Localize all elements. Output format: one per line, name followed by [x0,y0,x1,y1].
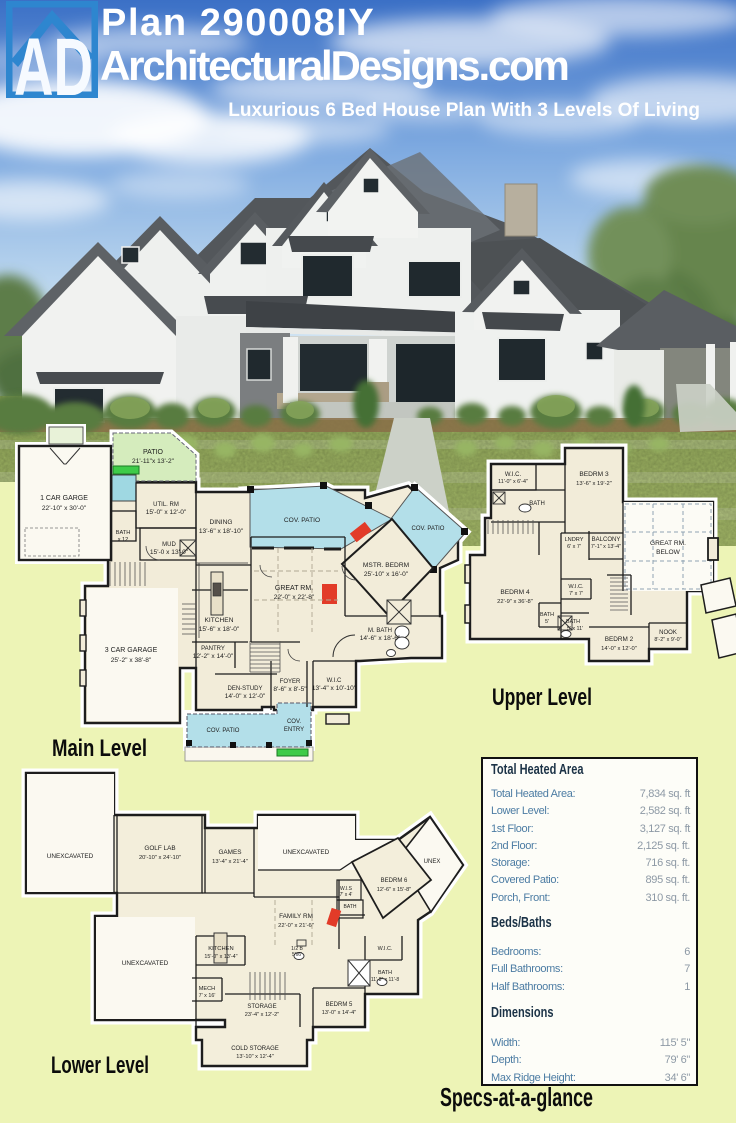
svg-text:14'-6" x 18'-6": 14'-6" x 18'-6" [360,635,401,642]
svg-text:W.I.C: W.I.C [327,678,342,684]
svg-text:BATH: BATH [378,970,392,976]
svg-text:22'-10" x 30'-0": 22'-10" x 30'-0" [42,505,87,512]
svg-text:11'-0" x 6'-4": 11'-0" x 6'-4" [498,479,528,485]
svg-text:FAMILY RM: FAMILY RM [279,913,313,920]
svg-text:7' x 4': 7' x 4' [340,892,353,898]
svg-text:22'-9" x 36'-8": 22'-9" x 36'-8" [497,599,533,605]
svg-text:13'-0" x 14'-4": 13'-0" x 14'-4" [322,1010,356,1016]
svg-text:MUD: MUD [162,542,176,548]
svg-text:13'-6" x 18'-10": 13'-6" x 18'-10" [199,528,244,535]
svg-text:BALCONY: BALCONY [592,537,621,543]
svg-text:BEDRM 6: BEDRM 6 [381,878,408,884]
svg-text:BATH: BATH [566,619,580,625]
svg-text:Upper Level: Upper Level [492,684,592,711]
svg-text:BELOW: BELOW [656,549,681,556]
svg-text:1 CAR GARGE: 1 CAR GARGE [40,495,88,502]
svg-text:13'-4" x 21'-4": 13'-4" x 21'-4" [212,859,248,865]
svg-text:LNDRY: LNDRY [565,537,584,543]
svg-text:21'-11"x 13'-2": 21'-11"x 13'-2" [132,458,175,465]
svg-text:7'-1" x 13'-4": 7'-1" x 13'-4" [591,544,621,550]
svg-text:BATH: BATH [116,530,131,536]
svg-text:13'-4" x 10'-10": 13'-4" x 10'-10" [312,685,357,692]
svg-text:KITCHEN: KITCHEN [205,617,234,624]
svg-text:7' x 16': 7' x 16' [199,993,216,999]
svg-text:13'-6" x 19'-2": 13'-6" x 19'-2" [576,481,612,487]
svg-text:GREAT RM.: GREAT RM. [275,585,313,592]
svg-text:BEDRM 4: BEDRM 4 [500,589,530,596]
svg-text:12'-2" x 14'-0": 12'-2" x 14'-0" [193,653,234,660]
svg-text:UNEX: UNEX [424,859,441,865]
svg-text:COV.: COV. [287,719,301,725]
svg-text:GAMES: GAMES [218,849,241,856]
svg-text:UNEXCAVATED: UNEXCAVATED [122,960,169,967]
svg-text:BATH: BATH [529,501,545,507]
svg-text:8'-6" x 8'-5": 8'-6" x 8'-5" [273,686,307,693]
svg-text:6' x 7': 6' x 7' [567,544,581,550]
svg-text:BEDRM 3: BEDRM 3 [579,471,609,478]
svg-text:12'-6" x 15'-8": 12'-6" x 15'-8" [377,887,411,893]
svg-text:COLD STORAGE: COLD STORAGE [231,1046,279,1052]
svg-text:STORAGE: STORAGE [247,1004,276,1010]
svg-text:22'-0" x 22'-8": 22'-0" x 22'-8" [274,594,315,601]
svg-text:23'-4" x 12'-2": 23'-4" x 12'-2" [245,1012,279,1018]
svg-text:AD: AD [14,22,93,98]
svg-text:25'-10" x 16'-0": 25'-10" x 16'-0" [364,571,409,578]
svg-text:5' x 11': 5' x 11' [567,626,583,632]
svg-text:DINING: DINING [209,519,232,526]
svg-text:15'-6" x 18'-0": 15'-6" x 18'-0" [199,626,240,633]
svg-text:UTIL. RM: UTIL. RM [153,502,179,508]
svg-text:DEN-STUDY: DEN-STUDY [227,686,262,692]
svg-text:x 12: x 12 [118,537,129,543]
svg-text:Lower Level: Lower Level [51,1052,149,1079]
svg-text:M. BATH: M. BATH [368,628,392,634]
svg-text:COV. PATIO: COV. PATIO [207,728,240,734]
svg-text:5'x6': 5'x6' [292,952,302,958]
svg-text:14'-0" x 12'-0": 14'-0" x 12'-0" [225,693,266,700]
svg-text:UNEXCAVATED: UNEXCAVATED [283,849,330,856]
svg-text:Main Level: Main Level [52,735,147,762]
svg-text:Specs-at-a-glance: Specs-at-a-glance [440,1082,593,1112]
svg-text:20'-10" x 24'-10": 20'-10" x 24'-10" [139,855,181,861]
svg-text:GREAT RM.: GREAT RM. [650,540,686,547]
svg-text:BEDRM 5: BEDRM 5 [326,1002,353,1008]
svg-text:GOLF LAB: GOLF LAB [144,845,175,852]
svg-text:13'-10" x 12'-4": 13'-10" x 12'-4" [236,1054,274,1060]
svg-text:14'-0" x 12'-0": 14'-0" x 12'-0" [601,646,637,652]
svg-text:KITCHEN: KITCHEN [208,946,233,952]
svg-text:BATH: BATH [344,904,357,910]
svg-text:W.I.C.: W.I.C. [378,946,393,952]
svg-text:7' x 7': 7' x 7' [569,591,583,597]
svg-text:FOYER: FOYER [280,679,301,685]
svg-text:PANTRY: PANTRY [201,646,225,652]
svg-text:UNEXCAVATED: UNEXCAVATED [47,853,94,860]
svg-text:MSTR. BEDRM: MSTR. BEDRM [363,562,409,569]
svg-text:22'-0" x 21'-6": 22'-0" x 21'-6" [278,923,314,929]
svg-text:15'-0" x 13'-4": 15'-0" x 13'-4" [204,954,237,960]
svg-text:NOOK: NOOK [659,630,677,636]
svg-text:W.I.C.: W.I.C. [505,472,522,478]
svg-text:25'-2" x 38'-8": 25'-2" x 38'-8" [111,657,152,664]
svg-text:5': 5' [545,619,549,625]
svg-text:15'-0 x 13'-0": 15'-0 x 13'-0" [150,549,189,556]
svg-text:W.I.C.: W.I.C. [568,584,584,590]
svg-text:11'-8" x 11'-8: 11'-8" x 11'-8 [371,977,399,983]
svg-text:PATIO: PATIO [143,449,164,456]
svg-text:15'-0" x 12'-0": 15'-0" x 12'-0" [146,509,187,516]
svg-text:ENTRY: ENTRY [284,727,304,733]
svg-text:3 CAR GARAGE: 3 CAR GARAGE [105,647,158,654]
svg-text:8'-2" x 9'-0": 8'-2" x 9'-0" [654,637,681,643]
svg-text:MECH: MECH [199,986,215,992]
svg-text:BEDRM 2: BEDRM 2 [605,636,634,643]
svg-text:BATH: BATH [540,612,554,618]
svg-text:COV. PATIO: COV. PATIO [284,517,320,524]
